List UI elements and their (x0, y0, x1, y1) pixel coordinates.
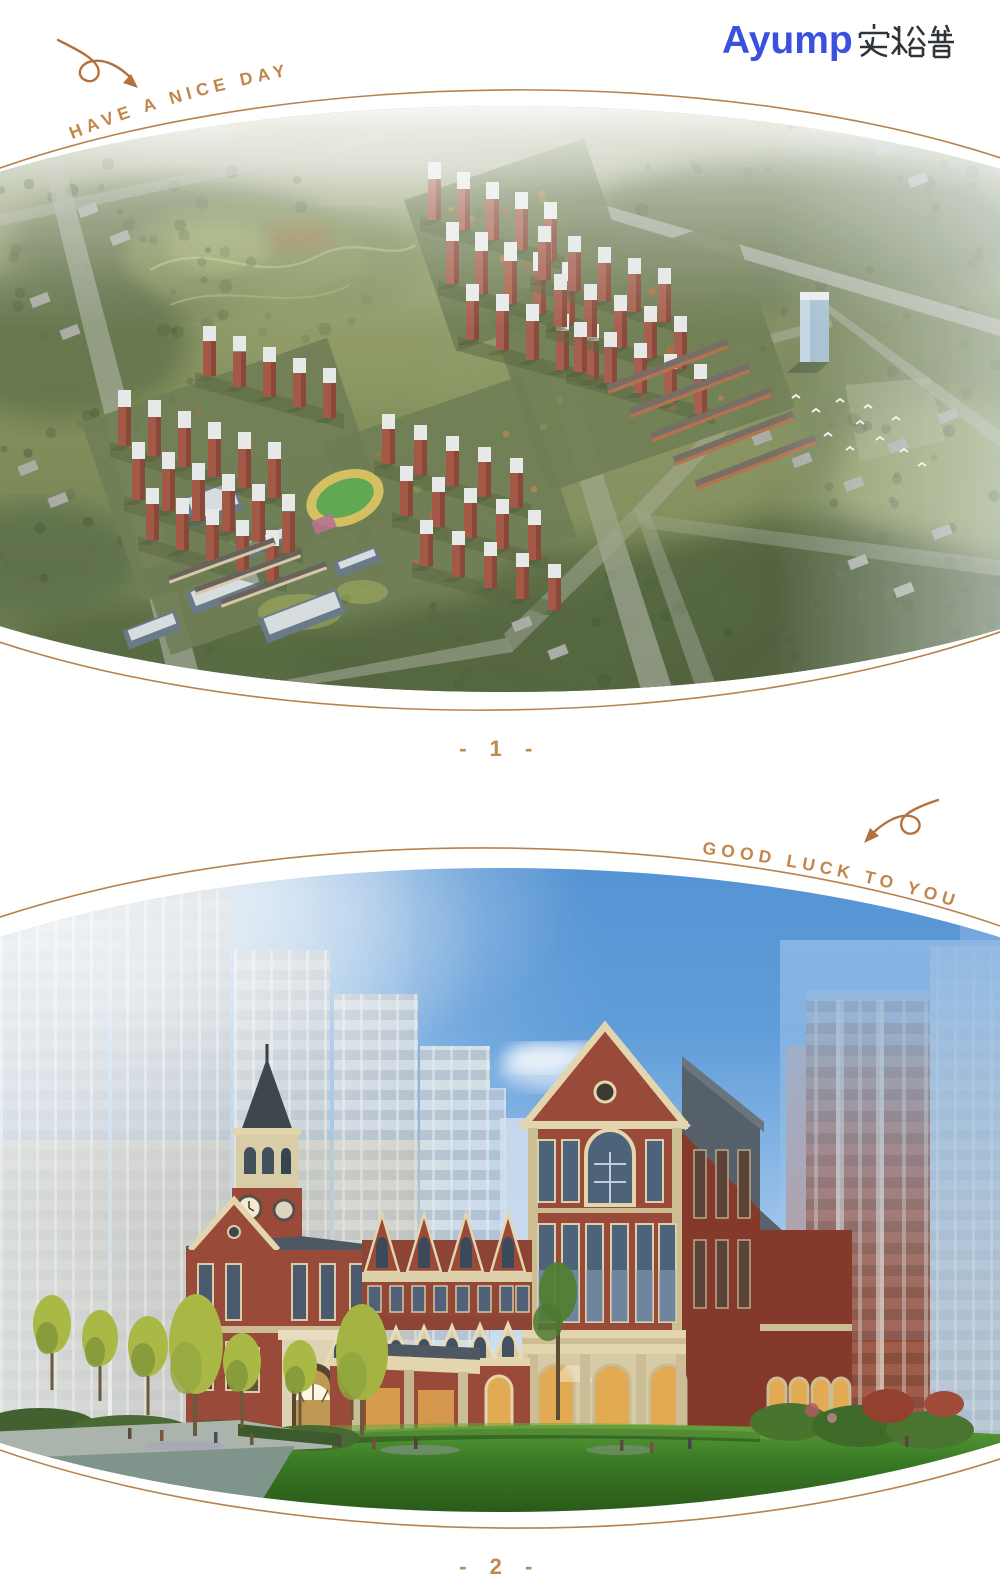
svg-text:- 2 -: - 2 - (459, 1554, 541, 1579)
svg-text:Ayump: Ayump (722, 19, 853, 62)
svg-text:- 1 -: - 1 - (459, 736, 541, 761)
